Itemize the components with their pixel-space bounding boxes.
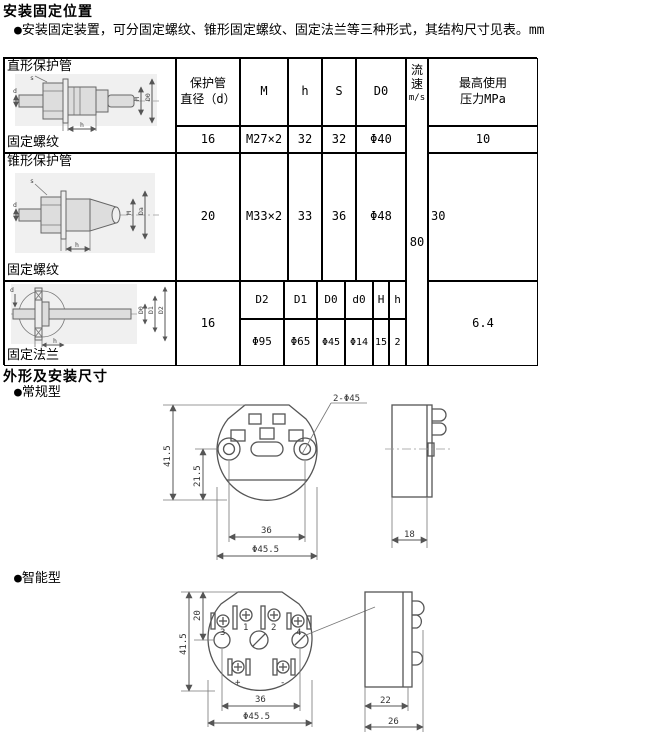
- dim-label-d2: D2: [157, 306, 165, 314]
- dim-height-41-5: 41.5: [179, 633, 189, 655]
- flow-speed-column: 流速 m/s 80: [406, 58, 428, 366]
- terminal-2-label: 2: [271, 623, 276, 633]
- header-flow-unit: m/s: [407, 93, 427, 105]
- header-m: M: [240, 58, 288, 126]
- row2-m: M33×2: [240, 153, 288, 281]
- terminal-plus-label: +: [235, 678, 241, 688]
- sub-value-hh: 15: [373, 319, 389, 366]
- header-d0: D0: [356, 58, 406, 126]
- dim-label-s: s: [30, 177, 34, 185]
- page-title: 安装固定位置: [3, 1, 93, 21]
- dim-dia-45-5: Φ45.5: [252, 545, 279, 555]
- dim-label-d1: D1: [147, 306, 155, 314]
- header-diameter: 保护管 直径（d）: [176, 58, 240, 126]
- dim-top-20: 20: [193, 610, 203, 621]
- header-pressure-line1: 最高使用: [459, 76, 507, 92]
- row1-s: 32: [322, 126, 356, 153]
- header-s: S: [322, 58, 356, 126]
- datasheet-page: 安装固定位置 ●安装固定装置，可分固定螺纹、锥形固定螺纹、固定法兰等三种形式，其…: [0, 0, 659, 732]
- row2-d0: Φ48: [356, 153, 406, 281]
- row1-h: 32: [288, 126, 322, 153]
- dim-label-h: h: [80, 121, 84, 129]
- sub-header-h: h: [389, 281, 406, 319]
- terminal-3-label: 3: [220, 628, 225, 638]
- row1-pressure: 10: [428, 126, 538, 153]
- dim-label-d0: D0: [144, 93, 152, 101]
- dim-label-d: d: [13, 87, 17, 95]
- dim-label-d: d: [13, 201, 17, 209]
- conical-tube-cell: 锥形保护管 s d M Da: [4, 153, 176, 281]
- mounting-spec-table: 直形保护管 s d M D0: [3, 57, 537, 365]
- header-diameter-line1: 保护管: [190, 76, 226, 92]
- dim-depth-22: 22: [380, 696, 391, 706]
- straight-tube-drawing: s d M D0 h: [13, 74, 165, 136]
- dim-height-41-5: 41.5: [163, 445, 173, 467]
- straight-tube-cell: 直形保护管 s d M D0: [4, 58, 176, 153]
- row2-s: 36: [322, 153, 356, 281]
- flange-fixing-label: 固定法兰: [7, 348, 59, 365]
- dim-label-d0: Da: [137, 207, 145, 215]
- sub-value-d0: Φ45: [317, 319, 345, 366]
- dim-label-h: h: [75, 241, 79, 249]
- regular-type-label: ●常规型: [14, 381, 61, 400]
- row2-pressure: 30: [428, 153, 538, 281]
- sub-header-d1: D1: [284, 281, 317, 319]
- conical-tube-label: 锥形保护管: [7, 154, 72, 171]
- sub-value-d0-small: Φ14: [345, 319, 373, 366]
- intro-text: ●安装固定装置，可分固定螺纹、锥形固定螺纹、固定法兰等三种形式，其结构尺寸见表。…: [14, 19, 544, 38]
- row3-pressure: 6.4: [428, 281, 538, 366]
- hole-callout-2xd45: 2-Φ45: [333, 394, 360, 404]
- dim-label-d: d: [10, 286, 14, 294]
- dim-dia-45-5: Φ45.5: [243, 712, 270, 722]
- sub-value-d1: Φ65: [284, 319, 317, 366]
- sub-header-d0: D0: [317, 281, 345, 319]
- header-diameter-line2: 直径（d）: [180, 92, 235, 108]
- row3-diameter: 16: [176, 281, 240, 366]
- dim-label-d0: D0: [137, 306, 145, 314]
- smart-type-label: ●智能型: [14, 567, 61, 586]
- header-pressure: 最高使用 压力MPa: [428, 58, 538, 126]
- row1-m: M27×2: [240, 126, 288, 153]
- terminal-1-label: 1: [243, 623, 248, 633]
- row1-diameter: 16: [176, 126, 240, 153]
- row2-h: 33: [288, 153, 322, 281]
- terminal-4-label: 4: [296, 628, 301, 638]
- dim-depth-18: 18: [404, 530, 415, 540]
- row1-d0: Φ40: [356, 126, 406, 153]
- terminal-minus-label: -: [280, 678, 285, 688]
- flange-drawing: d D0 D1 D2 h: [9, 284, 173, 348]
- dim-label-m: M: [125, 211, 133, 215]
- sub-value-d2: Φ95: [240, 319, 284, 366]
- dim-span-36: 36: [261, 526, 272, 536]
- header-h: h: [288, 58, 322, 126]
- regular-front-view: 41.5 21.5 2-Φ45 36 Φ45.5: [155, 392, 385, 568]
- flange-cell: d D0 D1 D2 h 固定法兰: [4, 281, 176, 366]
- header-flow-speed: 流速: [410, 64, 424, 92]
- dim-label-s: s: [30, 74, 34, 82]
- header-pressure-line2: 压力MPa: [460, 92, 506, 108]
- dim-depth-26: 26: [388, 717, 399, 727]
- sub-header-d0-small: d0: [345, 281, 373, 319]
- conical-fixing-label: 固定螺纹: [7, 263, 59, 280]
- conical-tube-drawing: s d M Da h: [13, 171, 165, 263]
- smart-side-view: 22 26: [355, 585, 467, 732]
- sub-value-h: 2: [389, 319, 406, 366]
- flow-value: 80: [407, 235, 427, 251]
- dim-label-h: h: [53, 337, 57, 345]
- dim-label-m: M: [133, 97, 141, 101]
- row2-diameter: 20: [176, 153, 240, 281]
- dim-half-21-5: 21.5: [193, 465, 203, 487]
- sub-header-d2: D2: [240, 281, 284, 319]
- regular-side-view: 18: [385, 392, 497, 568]
- dim-span-36: 36: [255, 695, 266, 705]
- straight-fixing-label: 固定螺纹: [7, 135, 59, 152]
- sub-header-hh: H: [373, 281, 389, 319]
